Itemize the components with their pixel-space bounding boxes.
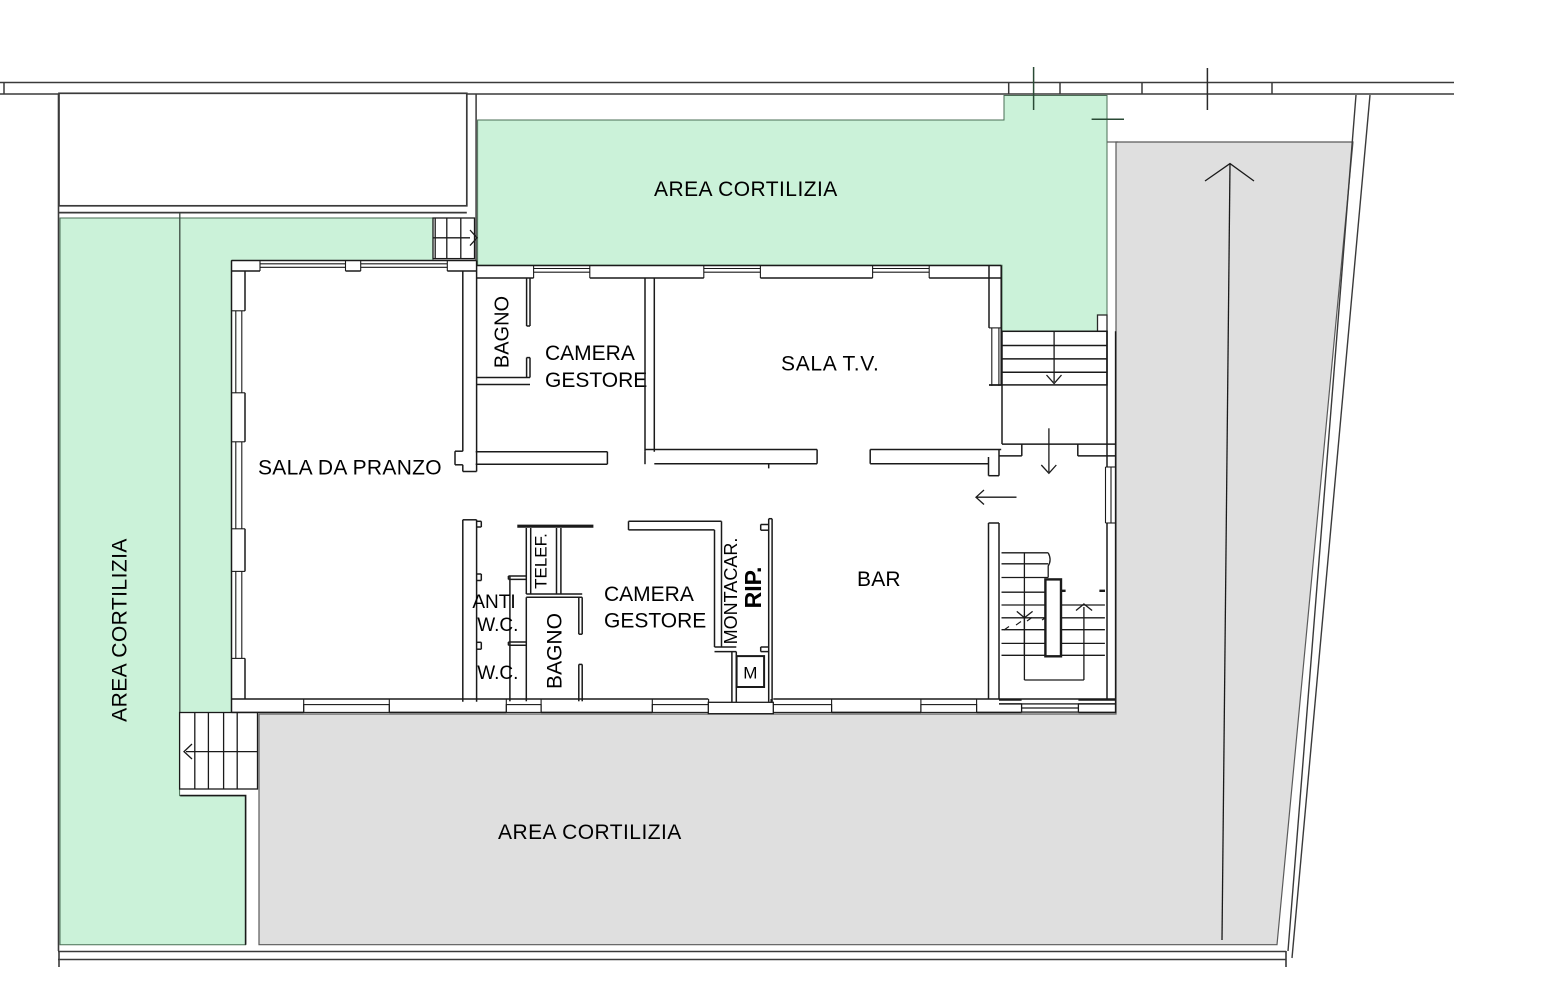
svg-text:W.C.: W.C. xyxy=(477,663,518,684)
svg-text:ANTI: ANTI xyxy=(472,592,515,613)
svg-text:M: M xyxy=(743,664,757,683)
svg-text:AREA CORTILIZIA: AREA CORTILIZIA xyxy=(498,821,682,844)
svg-text:BAGNO: BAGNO xyxy=(544,613,567,689)
svg-text:GESTORE: GESTORE xyxy=(545,369,647,392)
svg-text:CAMERA: CAMERA xyxy=(604,583,694,606)
svg-text:SALA T.V.: SALA T.V. xyxy=(781,353,880,376)
svg-text:SALA DA PRANZO: SALA DA PRANZO xyxy=(258,457,442,480)
svg-text:CAMERA: CAMERA xyxy=(545,342,635,365)
svg-text:MONTACAR.: MONTACAR. xyxy=(721,538,741,645)
svg-text:BAR: BAR xyxy=(857,568,901,591)
svg-text:W.C.: W.C. xyxy=(477,615,518,636)
svg-text:RIP.: RIP. xyxy=(740,567,766,609)
svg-text:TELEF.: TELEF. xyxy=(532,533,551,589)
svg-text:GESTORE: GESTORE xyxy=(604,609,706,632)
svg-text:AREA CORTILIZIA: AREA CORTILIZIA xyxy=(654,178,838,201)
svg-text:AREA CORTILIZIA: AREA CORTILIZIA xyxy=(109,538,132,722)
svg-text:BAGNO: BAGNO xyxy=(492,296,514,368)
